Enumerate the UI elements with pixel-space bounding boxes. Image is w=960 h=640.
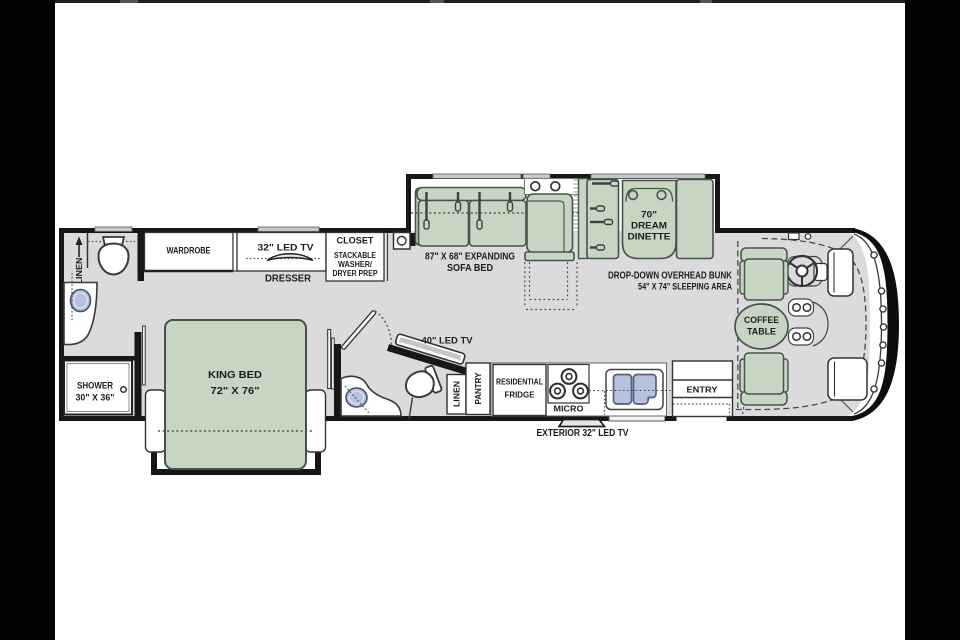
- svg-text:32" LED TV: 32" LED TV: [258, 243, 315, 254]
- svg-text:MICRO: MICRO: [554, 404, 584, 414]
- svg-text:72" X 76": 72" X 76": [211, 385, 260, 397]
- svg-text:COFFEE: COFFEE: [744, 315, 779, 325]
- svg-text:54" X 74" SLEEPING AREA: 54" X 74" SLEEPING AREA: [638, 282, 732, 292]
- svg-text:CLOSET: CLOSET: [337, 236, 374, 247]
- svg-text:KING BED: KING BED: [208, 369, 262, 381]
- svg-text:WARDROBE: WARDROBE: [167, 246, 211, 257]
- svg-text:LINEN: LINEN: [74, 258, 84, 285]
- svg-text:SOFA BED: SOFA BED: [447, 263, 493, 274]
- svg-text:PANTRY: PANTRY: [473, 372, 483, 404]
- svg-text:STACKABLE: STACKABLE: [334, 251, 377, 260]
- svg-text:70": 70": [641, 210, 657, 221]
- svg-text:30" X 36": 30" X 36": [76, 393, 115, 404]
- svg-text:DREAM: DREAM: [631, 221, 667, 232]
- svg-text:DRESSER: DRESSER: [265, 274, 312, 285]
- svg-text:DROP-DOWN OVERHEAD BUNK: DROP-DOWN OVERHEAD BUNK: [608, 271, 733, 282]
- svg-text:EXTERIOR 32" LED TV: EXTERIOR 32" LED TV: [537, 428, 629, 439]
- svg-text:LINEN: LINEN: [452, 381, 462, 407]
- svg-text:WASHER/: WASHER/: [338, 260, 373, 269]
- svg-text:87" X 68" EXPANDING: 87" X 68" EXPANDING: [425, 252, 515, 263]
- svg-text:40" LED TV: 40" LED TV: [422, 336, 474, 347]
- svg-text:TABLE: TABLE: [747, 327, 776, 337]
- svg-text:DRYER PREP: DRYER PREP: [333, 269, 379, 278]
- svg-text:ENTRY: ENTRY: [687, 385, 718, 395]
- svg-text:SHOWER: SHOWER: [77, 381, 113, 392]
- svg-text:RESIDENTIAL: RESIDENTIAL: [496, 377, 543, 387]
- svg-text:DINETTE: DINETTE: [628, 232, 671, 243]
- svg-text:FRIDGE: FRIDGE: [505, 390, 535, 400]
